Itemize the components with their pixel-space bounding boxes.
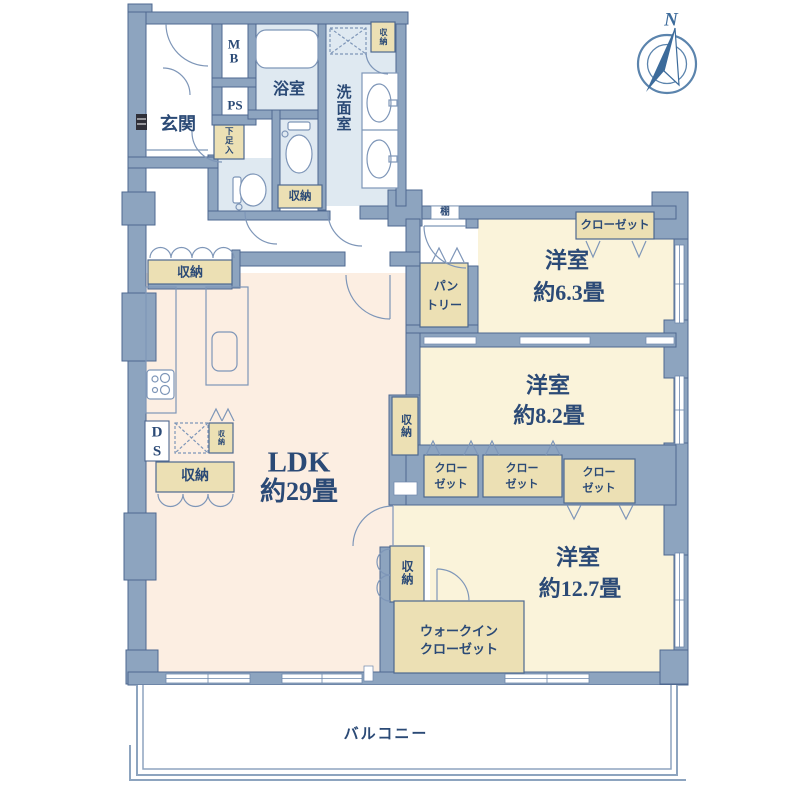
stove-icon (147, 370, 174, 399)
compass-icon (638, 28, 696, 93)
room-size-82: 約8.2畳 (513, 405, 585, 427)
closet-b-box (483, 455, 562, 497)
ps-label: PS (227, 99, 242, 112)
closet-a-label-2: ゼット (435, 480, 468, 491)
closet-label-63: クローゼット (581, 220, 650, 232)
mb-label-2: B (230, 52, 239, 65)
pantry-label-2: トリー (426, 299, 462, 311)
closet-c-label-1: クロー (583, 468, 616, 479)
room-size-127: 約12.7畳 (539, 578, 622, 600)
closet-b-label-2: ゼット (506, 480, 539, 491)
compass-north-label: N (664, 11, 678, 30)
bedroom-127-floor-strip (394, 505, 430, 547)
wic-label-1: ウォークイン (420, 625, 498, 638)
floor-plan: 玄関 M B PS 下足入 浴室 洗面室 収納 収納 棚 パン トリー クローゼ… (0, 0, 800, 800)
pantry-box (420, 263, 468, 327)
closet-a-label-1: クロー (435, 464, 468, 475)
shoe-cabinet-label: 下足入 (225, 127, 234, 156)
room-label-63: 洋室 (545, 250, 589, 272)
shelf-label: 棚 (440, 208, 450, 218)
closet-b-label-1: クロー (506, 464, 539, 475)
room-label-ldk: LDK (268, 449, 331, 478)
ds-label-1: D (152, 426, 163, 441)
pantry-label-1: パン (434, 280, 459, 292)
ds-label-2: S (153, 445, 161, 460)
bathtub-icon (256, 30, 318, 68)
storage-label-ldk-left: 収納 (181, 470, 209, 484)
double-sink-icon (362, 73, 398, 188)
room-label-balcony: バルコニー (344, 728, 429, 743)
wic-label-2: クローゼット (420, 643, 498, 656)
intercom-icon (136, 114, 147, 130)
storage-label-hall: 収納 (289, 191, 312, 203)
room-label-bath: 浴室 (273, 82, 305, 98)
room-label-washroom: 洗面室 (335, 84, 350, 132)
closet-a-box (424, 455, 478, 497)
mb-label-1: M (228, 38, 240, 51)
room-label-127: 洋室 (556, 547, 600, 569)
room-label-82: 洋室 (526, 375, 570, 397)
storage-label-washroom: 収納 (379, 28, 387, 46)
storage-label-127: 収納 (401, 560, 413, 586)
storage-label-kitchen: 収納 (218, 430, 225, 446)
storage-label-mid: 収納 (400, 414, 411, 438)
room-size-ldk: 約29畳 (260, 479, 338, 505)
room-size-63: 約6.3畳 (533, 282, 605, 304)
floor-plan-drawing (0, 0, 800, 800)
closet-c-label-2: ゼット (583, 484, 616, 495)
storage-label-ldk-top: 収納 (177, 266, 203, 279)
room-label-genkan: 玄関 (160, 115, 196, 133)
